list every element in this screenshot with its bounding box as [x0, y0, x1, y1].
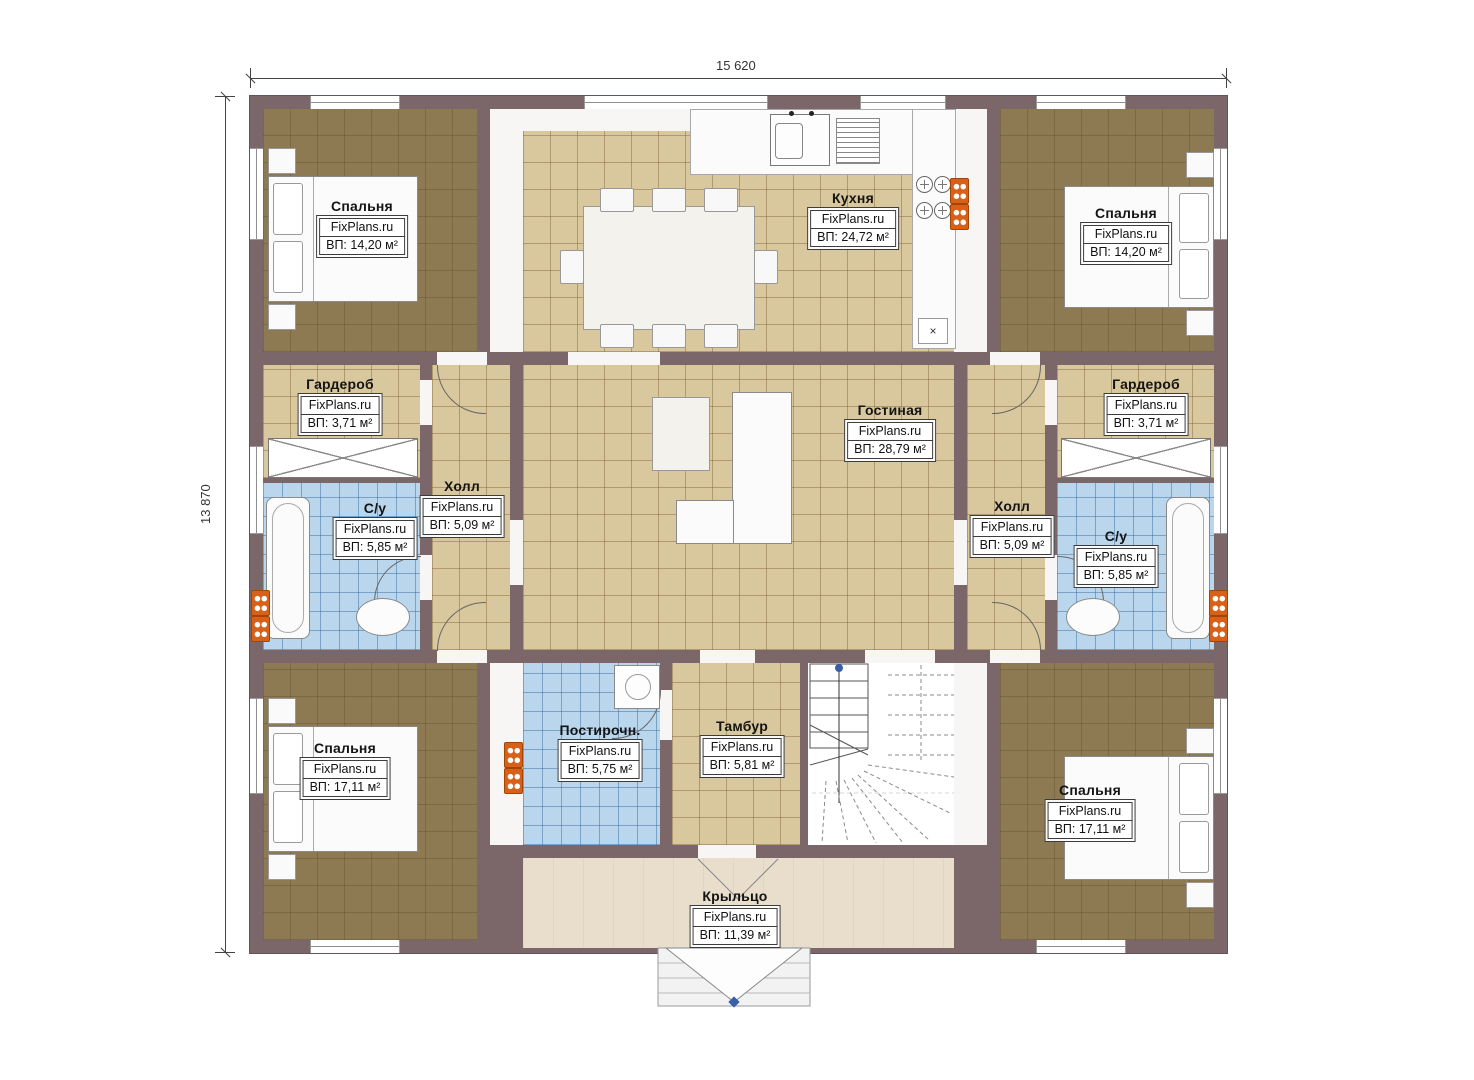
dining-chair	[754, 250, 778, 284]
room-area: ВП: 5,09 м²	[973, 536, 1052, 555]
room-info-box: FixPlans.ru ВП: 14,20 м²	[316, 215, 408, 258]
window	[310, 940, 400, 953]
pillow	[273, 183, 303, 235]
dining-chair	[600, 324, 634, 348]
brand-watermark: FixPlans.ru	[303, 760, 388, 779]
window	[1036, 940, 1126, 953]
stove-burner	[934, 176, 951, 193]
room-label-bedroom-bottom-right: Спальня FixPlans.ru ВП: 17,11 м²	[1045, 782, 1136, 842]
room-name: С/у	[1105, 528, 1127, 544]
nightstand	[1186, 310, 1214, 336]
room-area: ВП: 3,71 м²	[1107, 414, 1186, 433]
door-opening	[510, 520, 523, 585]
brand-watermark: FixPlans.ru	[1083, 225, 1169, 244]
brand-watermark: FixPlans.ru	[1077, 548, 1156, 567]
window	[310, 96, 400, 109]
wardrobe-cabinet	[268, 438, 418, 478]
room-area: ВП: 5,09 м²	[423, 516, 502, 535]
sink-basin	[775, 123, 803, 159]
room-area: ВП: 17,11 м²	[303, 778, 388, 797]
brand-watermark: FixPlans.ru	[847, 422, 933, 441]
stove-burner	[916, 176, 933, 193]
window	[250, 148, 263, 240]
radiator	[251, 590, 270, 616]
room-label-living: Гостиная FixPlans.ru ВП: 28,79 м²	[844, 402, 936, 462]
blanket-line	[313, 177, 314, 301]
room-name: Спальня	[314, 740, 376, 756]
room-name: С/у	[364, 500, 386, 516]
room-area: ВП: 28,79 м²	[847, 440, 933, 459]
dimension-height-label: 13 870	[198, 484, 213, 524]
dining-chair	[560, 250, 584, 284]
room-info-box: FixPlans.ru ВП: 24,72 м²	[807, 207, 899, 250]
window	[1214, 148, 1227, 240]
window	[584, 96, 768, 109]
dimension-line-top	[250, 78, 1227, 79]
kitchen-sink	[770, 114, 830, 166]
dimension-extension	[215, 952, 235, 953]
room-area: ВП: 5,85 м²	[1077, 566, 1156, 585]
room-info-box: FixPlans.ru ВП: 5,81 м²	[700, 735, 785, 778]
faucet-dot	[789, 111, 794, 116]
room-label-bedroom-bottom-left: Спальня FixPlans.ru ВП: 17,11 м²	[300, 740, 391, 800]
room-info-box: FixPlans.ru ВП: 5,09 м²	[970, 515, 1055, 558]
nightstand	[1186, 728, 1214, 754]
room-name: Гардероб	[1112, 376, 1180, 392]
room-info-box: FixPlans.ru ВП: 17,11 м²	[300, 757, 391, 800]
closet-strip	[490, 109, 523, 352]
brand-watermark: FixPlans.ru	[561, 742, 640, 761]
pillow	[1179, 193, 1209, 243]
wall-opening	[568, 352, 660, 365]
nightstand	[268, 854, 296, 880]
faucet-dot	[809, 111, 814, 116]
room-info-box: FixPlans.ru ВП: 3,71 м²	[298, 393, 383, 436]
room-area: ВП: 5,81 м²	[703, 756, 782, 775]
staircase	[808, 663, 954, 845]
room-info-box: FixPlans.ru ВП: 5,85 м²	[333, 517, 418, 560]
dining-chair	[652, 324, 686, 348]
room-name: Холл	[444, 478, 480, 494]
kitchen-wall-strip	[523, 109, 693, 131]
room-label-vestibule: Тамбур FixPlans.ru ВП: 5,81 м²	[700, 718, 785, 778]
door-opening	[990, 352, 1040, 365]
room-name: Холл	[994, 498, 1030, 514]
radiator	[950, 204, 969, 230]
pillow	[1179, 821, 1209, 873]
radiator	[1209, 616, 1228, 642]
room-label-kitchen: Кухня FixPlans.ru ВП: 24,72 м²	[807, 190, 899, 250]
dining-chair	[704, 324, 738, 348]
door-opening	[437, 650, 487, 663]
room-area: ВП: 3,71 м²	[301, 414, 380, 433]
brand-watermark: FixPlans.ru	[810, 210, 896, 229]
dimension-width-label: 15 620	[716, 58, 756, 73]
room-label-bedroom-top-right: Спальня FixPlans.ru ВП: 14,20 м²	[1080, 205, 1172, 265]
bathtub	[266, 497, 310, 639]
door-opening	[1045, 555, 1057, 600]
room-name: Крыльцо	[702, 888, 767, 904]
room-name: Постирочн.	[560, 722, 641, 738]
pillow	[1179, 763, 1209, 815]
room-label-bedroom-top-left: Спальня FixPlans.ru ВП: 14,20 м²	[316, 198, 408, 258]
dimension-extension	[1226, 68, 1227, 88]
door-opening	[437, 352, 487, 365]
door-opening	[954, 520, 967, 585]
window	[1036, 96, 1126, 109]
stove-burner	[916, 202, 933, 219]
dimension-extension	[250, 68, 251, 88]
dining-chair	[704, 188, 738, 212]
dining-chair	[600, 188, 634, 212]
brand-watermark: FixPlans.ru	[423, 498, 502, 517]
brand-watermark: FixPlans.ru	[319, 218, 405, 237]
brand-watermark: FixPlans.ru	[1048, 802, 1133, 821]
radiator	[950, 178, 969, 204]
coffee-table	[652, 397, 710, 471]
room-name: Спальня	[1059, 782, 1121, 798]
brand-watermark: FixPlans.ru	[301, 396, 380, 415]
room-label-wardrobe-right: Гардероб FixPlans.ru ВП: 3,71 м²	[1104, 376, 1189, 436]
dimension-line-left	[225, 96, 226, 953]
room-label-porch: Крыльцо FixPlans.ru ВП: 11,39 м²	[690, 888, 781, 948]
closet-strip	[954, 109, 987, 352]
room-info-box: FixPlans.ru ВП: 5,85 м²	[1074, 545, 1159, 588]
nightstand	[268, 304, 296, 330]
room-name: Спальня	[1095, 205, 1157, 221]
room-area: ВП: 14,20 м²	[1083, 243, 1169, 262]
room-info-box: FixPlans.ru ВП: 14,20 м²	[1080, 222, 1172, 265]
hatch-marker: ×	[918, 318, 948, 344]
stove-burner	[934, 202, 951, 219]
entry-steps	[656, 946, 812, 1010]
sofa	[732, 392, 792, 544]
pillow	[273, 733, 303, 785]
bathroom-sink	[1066, 598, 1120, 636]
room-info-box: FixPlans.ru ВП: 5,75 м²	[558, 739, 643, 782]
room-area: ВП: 5,85 м²	[336, 538, 415, 557]
sofa-chaise	[676, 500, 734, 544]
pillow	[1179, 249, 1209, 299]
brand-watermark: FixPlans.ru	[703, 738, 782, 757]
window	[250, 446, 263, 534]
window	[1214, 446, 1227, 534]
radiator	[504, 742, 523, 768]
window	[860, 96, 946, 109]
radiator	[251, 616, 270, 642]
room-label-bathroom-left: С/у FixPlans.ru ВП: 5,85 м²	[333, 500, 418, 560]
blanket-line	[1168, 757, 1169, 879]
wardrobe-cabinet	[1061, 438, 1211, 478]
dining-table	[583, 206, 755, 330]
nightstand	[268, 148, 296, 174]
room-name: Тамбур	[716, 718, 768, 734]
room-area: ВП: 24,72 м²	[810, 228, 896, 247]
door-opening	[1045, 380, 1057, 425]
closet-strip	[954, 663, 987, 845]
room-name: Спальня	[331, 198, 393, 214]
bathtub-basin	[272, 503, 304, 633]
door-opening	[420, 380, 432, 425]
room-area: ВП: 17,11 м²	[1048, 820, 1133, 839]
room-info-box: FixPlans.ru ВП: 17,11 м²	[1045, 799, 1136, 842]
nightstand	[1186, 882, 1214, 908]
nightstand	[1186, 152, 1214, 178]
room-label-laundry: Постирочн. FixPlans.ru ВП: 5,75 м²	[558, 722, 643, 782]
washing-machine	[614, 665, 660, 709]
room-name: Гостиная	[858, 402, 923, 418]
stair-opening	[865, 650, 935, 663]
door-opening	[660, 690, 672, 740]
room-name: Гардероб	[306, 376, 374, 392]
dish-drainer	[836, 118, 880, 164]
room-info-box: FixPlans.ru ВП: 28,79 м²	[844, 419, 936, 462]
bathtub	[1166, 497, 1210, 639]
radiator	[504, 768, 523, 794]
pillow	[273, 241, 303, 293]
room-area: ВП: 5,75 м²	[561, 760, 640, 779]
room-name: Кухня	[832, 190, 874, 206]
door-opening	[990, 650, 1040, 663]
room-label-bathroom-right: С/у FixPlans.ru ВП: 5,85 м²	[1074, 528, 1159, 588]
brand-watermark: FixPlans.ru	[973, 518, 1052, 537]
bathroom-sink	[356, 598, 410, 636]
room-label-hall-right: Холл FixPlans.ru ВП: 5,09 м²	[970, 498, 1055, 558]
brand-watermark: FixPlans.ru	[1107, 396, 1186, 415]
nightstand	[268, 698, 296, 724]
room-info-box: FixPlans.ru ВП: 11,39 м²	[690, 905, 781, 948]
radiator	[1209, 590, 1228, 616]
window	[1214, 698, 1227, 794]
floor-plan: 15 620 13 870	[0, 0, 1474, 1080]
room-area: ВП: 14,20 м²	[319, 236, 405, 255]
room-info-box: FixPlans.ru ВП: 3,71 м²	[1104, 393, 1189, 436]
window	[250, 698, 263, 794]
room-label-wardrobe-left: Гардероб FixPlans.ru ВП: 3,71 м²	[298, 376, 383, 436]
door-opening	[420, 555, 432, 600]
bathtub-basin	[1172, 503, 1204, 633]
room-info-box: FixPlans.ru ВП: 5,09 м²	[420, 495, 505, 538]
brand-watermark: FixPlans.ru	[693, 908, 778, 927]
brand-watermark: FixPlans.ru	[336, 520, 415, 539]
room-area: ВП: 11,39 м²	[693, 926, 778, 945]
dimension-extension	[215, 96, 235, 97]
pillow	[273, 791, 303, 843]
dining-chair	[652, 188, 686, 212]
door-opening	[700, 650, 755, 663]
room-label-hall-left: Холл FixPlans.ru ВП: 5,09 м²	[420, 478, 505, 538]
